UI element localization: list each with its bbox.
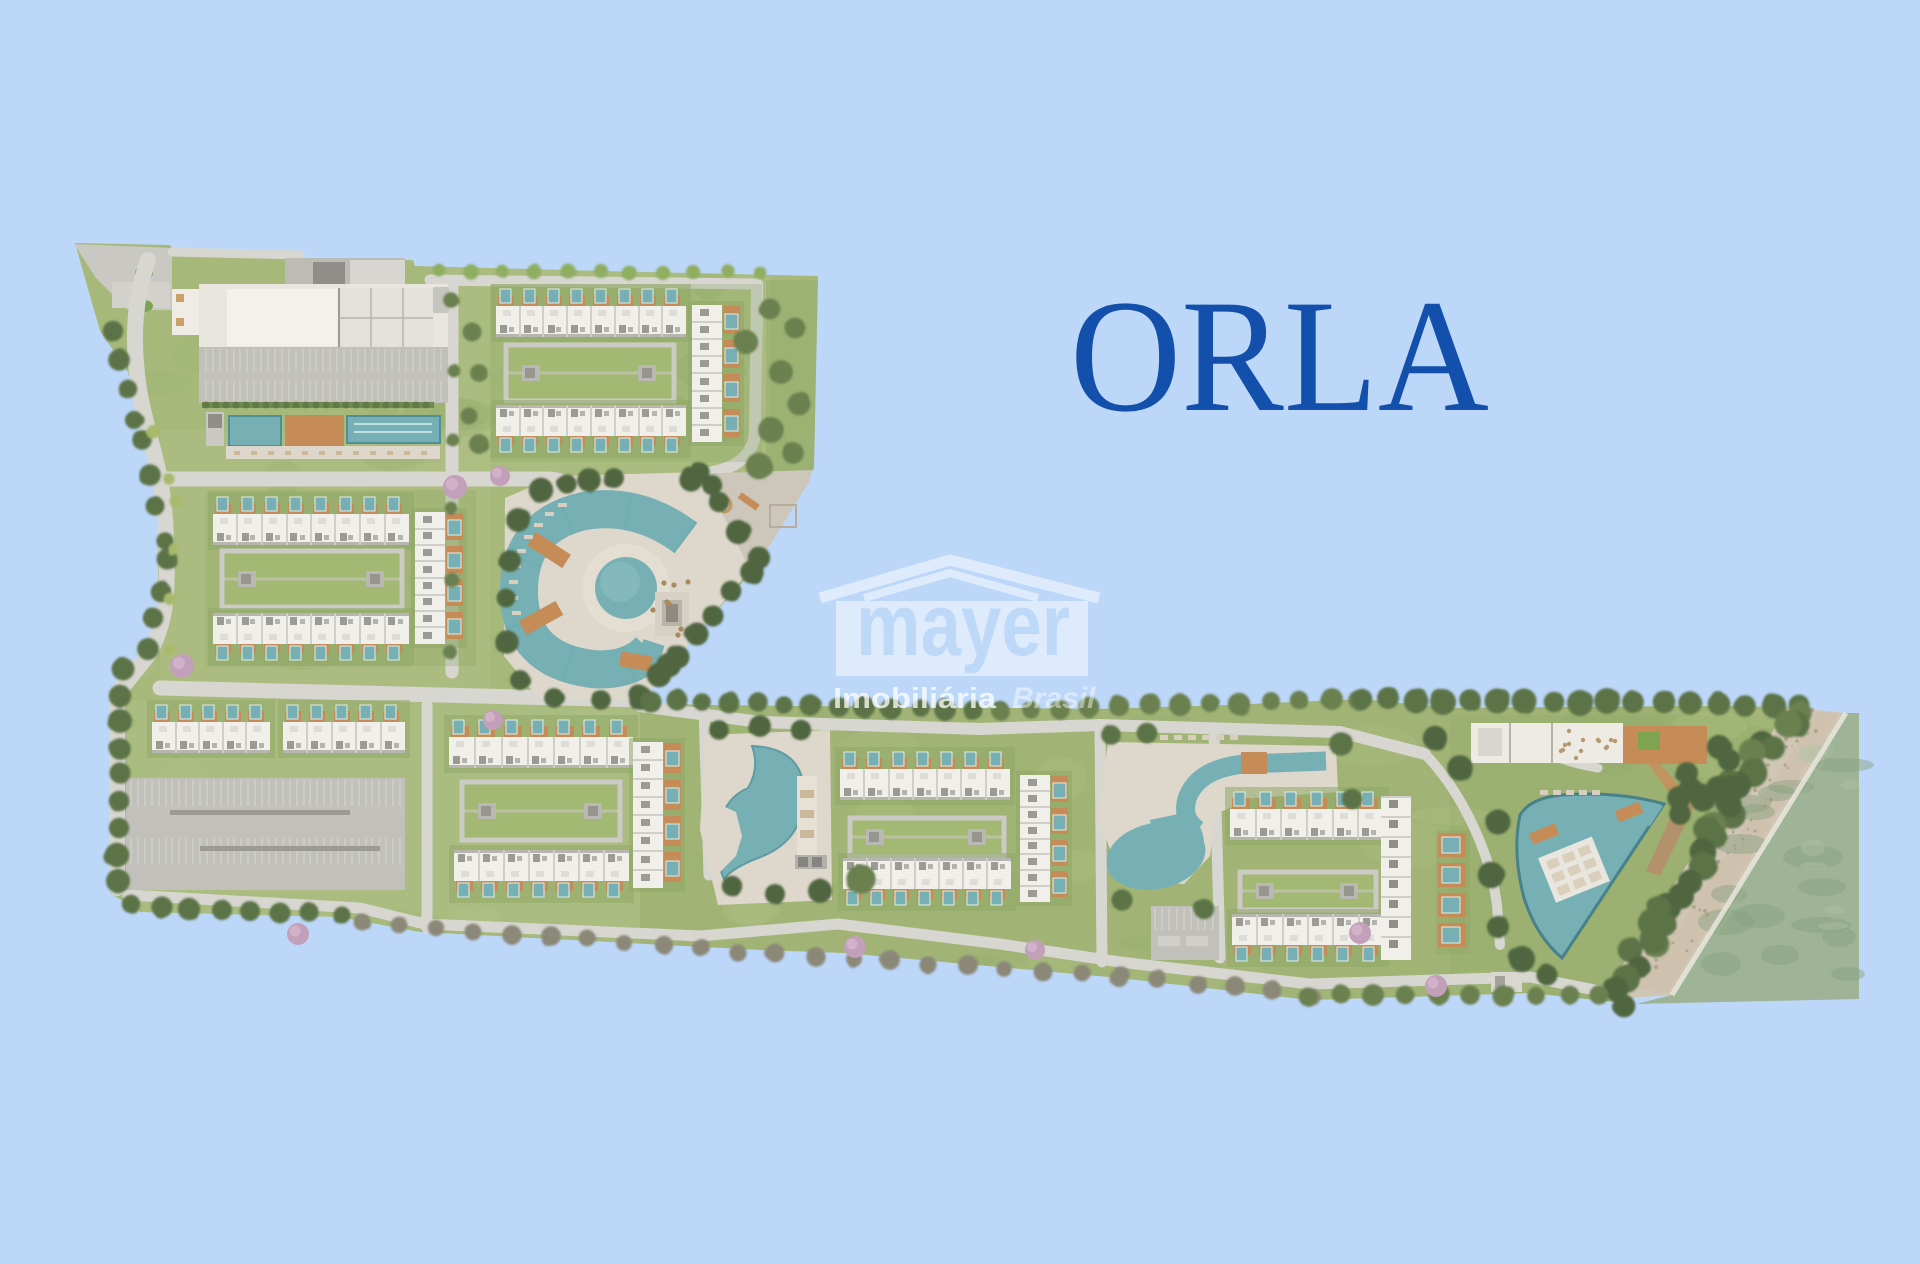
svg-text:ORLA: ORLA [1070, 267, 1489, 445]
svg-text:mayer: mayer [856, 575, 1070, 674]
svg-text:Imobiliária: Imobiliária [833, 683, 997, 715]
svg-text:Brasil: Brasil [1012, 682, 1096, 715]
